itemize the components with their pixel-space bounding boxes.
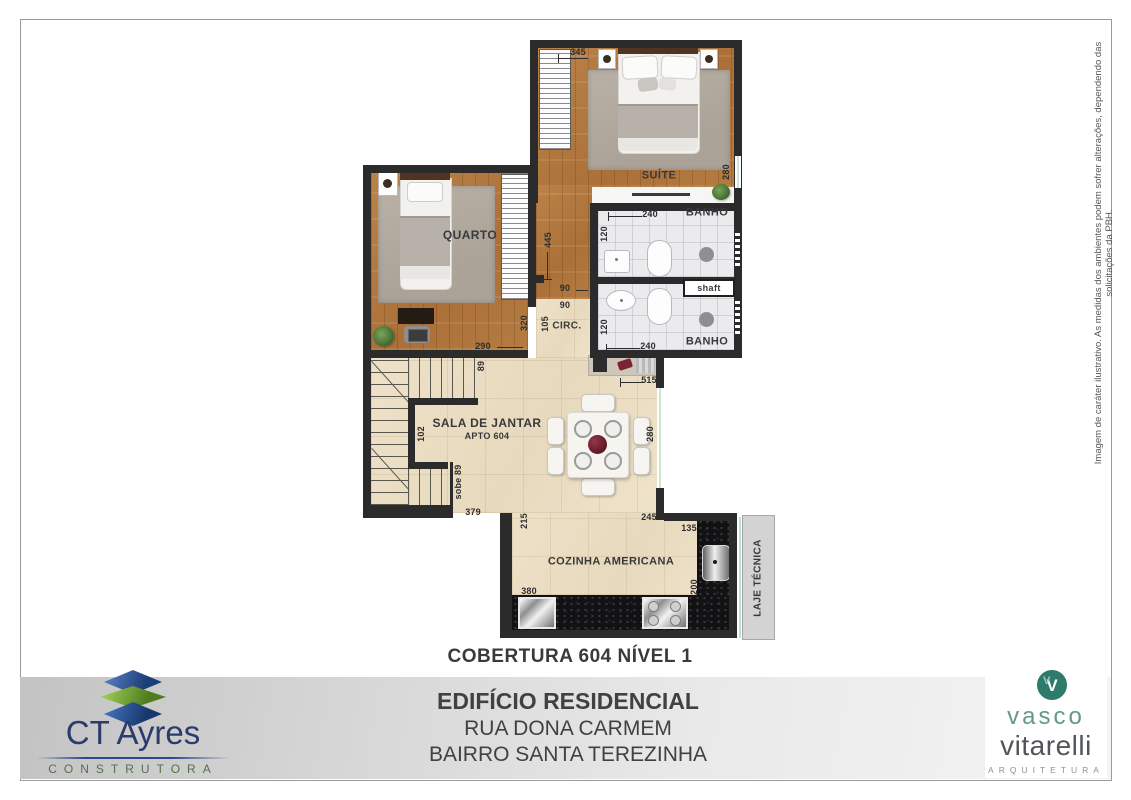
- toilet-dot: [615, 258, 618, 261]
- dimension-label: 379: [465, 507, 481, 517]
- desk: [398, 308, 434, 324]
- burner: [648, 615, 659, 626]
- wall: [363, 173, 371, 513]
- dimension-label: 320: [519, 315, 529, 331]
- shower-head: [699, 312, 714, 327]
- stair-flight-top: [408, 358, 478, 398]
- burner: [670, 601, 681, 612]
- dim-line: [558, 54, 559, 63]
- stair-core-wall: [408, 398, 415, 469]
- dimension-label: 245: [641, 512, 657, 522]
- wall: [729, 513, 737, 638]
- dimension-label: 105: [540, 316, 550, 332]
- dim-line: [608, 216, 642, 217]
- floor-plan: SUÍTEQUARTOBANHOBANHOCIRC.SALA DE JANTAR…: [0, 0, 1131, 800]
- burner: [670, 615, 681, 626]
- quarto-pillow: [407, 182, 443, 202]
- wall: [500, 630, 737, 638]
- dining-chair: [547, 417, 564, 445]
- room-sublabel: APTO 604: [433, 431, 542, 441]
- suite-wardrobe: [539, 49, 571, 150]
- room-label-circ-: CIRC.: [552, 320, 581, 332]
- room-label-cozinha-americana: COZINHA AMERICANA: [548, 556, 674, 569]
- laje-green-line: [739, 517, 741, 638]
- wall: [664, 513, 737, 521]
- plant: [712, 184, 730, 200]
- lamp: [383, 179, 392, 188]
- wall: [371, 350, 528, 358]
- room-label-sala-de-jantar: SALA DE JANTARAPTO 604: [433, 417, 542, 441]
- lamp: [705, 55, 713, 63]
- dimension-label: 90: [560, 283, 570, 293]
- dim-line: [620, 378, 621, 387]
- dining-chair: [547, 447, 564, 475]
- dimension-label: 515: [641, 375, 657, 385]
- quarto-blanket: [400, 216, 450, 270]
- console-decor-dark: [593, 357, 607, 372]
- washbasin-dot: [620, 299, 623, 302]
- water-heater-dot: [713, 560, 717, 564]
- dim-line: [576, 290, 588, 291]
- dimension-label: 280: [645, 426, 655, 442]
- toilet: [604, 250, 630, 273]
- room-label-shaft: shaft: [697, 283, 721, 293]
- vent-hatch: [735, 298, 740, 334]
- dimension-label: 135: [681, 523, 697, 533]
- dimension-label: 120: [599, 319, 609, 335]
- console-decor-box: [636, 356, 655, 373]
- plate: [604, 420, 622, 438]
- suite-cushion: [637, 77, 659, 93]
- laptop: [408, 329, 428, 342]
- suite-pillow: [660, 55, 697, 80]
- suite-blanket: [618, 104, 698, 142]
- dimension-label: 215: [519, 513, 529, 529]
- kitchen-sink: [518, 597, 556, 629]
- dim-line: [543, 279, 552, 280]
- wall: [528, 173, 536, 307]
- shower-tray: [647, 288, 672, 325]
- wall: [530, 40, 742, 48]
- room-label-laje-t-cnica: LAJE TÉCNICA: [752, 539, 764, 617]
- stair-core-wall: [408, 398, 478, 405]
- suite-cushion: [658, 77, 676, 91]
- wall: [363, 165, 538, 173]
- shower-tray: [647, 240, 672, 277]
- dimension-label: 89: [476, 361, 486, 371]
- wall: [500, 513, 512, 638]
- plate: [574, 420, 592, 438]
- burner: [648, 601, 659, 612]
- dim-line: [547, 252, 548, 280]
- stair-flight-bottom: [408, 465, 455, 505]
- dimension-label: sobe 89: [453, 465, 463, 500]
- dining-chair: [581, 394, 615, 412]
- suite-door-track: [632, 193, 690, 196]
- wall: [590, 211, 598, 350]
- room-label-banho: BANHO: [686, 207, 728, 220]
- dimension-label: 280: [721, 164, 731, 180]
- wall: [590, 350, 742, 358]
- dim-line: [558, 58, 588, 59]
- plate: [574, 452, 592, 470]
- room-label-banho: BANHO: [686, 336, 728, 349]
- wall: [656, 488, 664, 520]
- wall: [363, 505, 453, 518]
- dimension-label: 240: [642, 209, 658, 219]
- sala-window: [657, 388, 663, 488]
- suite-sheet: [618, 138, 698, 151]
- dimension-label: 290: [475, 341, 491, 351]
- dining-chair: [581, 478, 615, 496]
- room-label-su-te: SUÍTE: [642, 170, 676, 183]
- stair-core-wall: [408, 462, 448, 469]
- dining-chair: [633, 447, 650, 475]
- dimension-label: 345: [570, 47, 586, 57]
- dim-line: [606, 344, 607, 353]
- dimension-label: 200: [689, 579, 699, 595]
- centerpiece-flowers: [588, 435, 607, 454]
- dim-line: [606, 348, 640, 349]
- dimension-label: 240: [640, 341, 656, 351]
- lamp: [603, 55, 611, 63]
- room-label-quarto: QUARTO: [443, 229, 497, 243]
- quarto-sheet: [400, 266, 450, 279]
- plant: [373, 326, 394, 346]
- suite-window: [735, 156, 741, 188]
- dimension-label: 102: [416, 426, 426, 442]
- dimension-label: 120: [599, 226, 609, 242]
- plate: [604, 452, 622, 470]
- dim-line: [608, 212, 609, 221]
- wall: [656, 350, 664, 388]
- dimension-label: 380: [521, 586, 537, 596]
- dimension-label: 90: [560, 300, 570, 310]
- shower-head: [699, 247, 714, 262]
- dim-line: [497, 347, 523, 348]
- dimension-label: 445: [543, 232, 553, 248]
- vent-hatch: [735, 230, 740, 266]
